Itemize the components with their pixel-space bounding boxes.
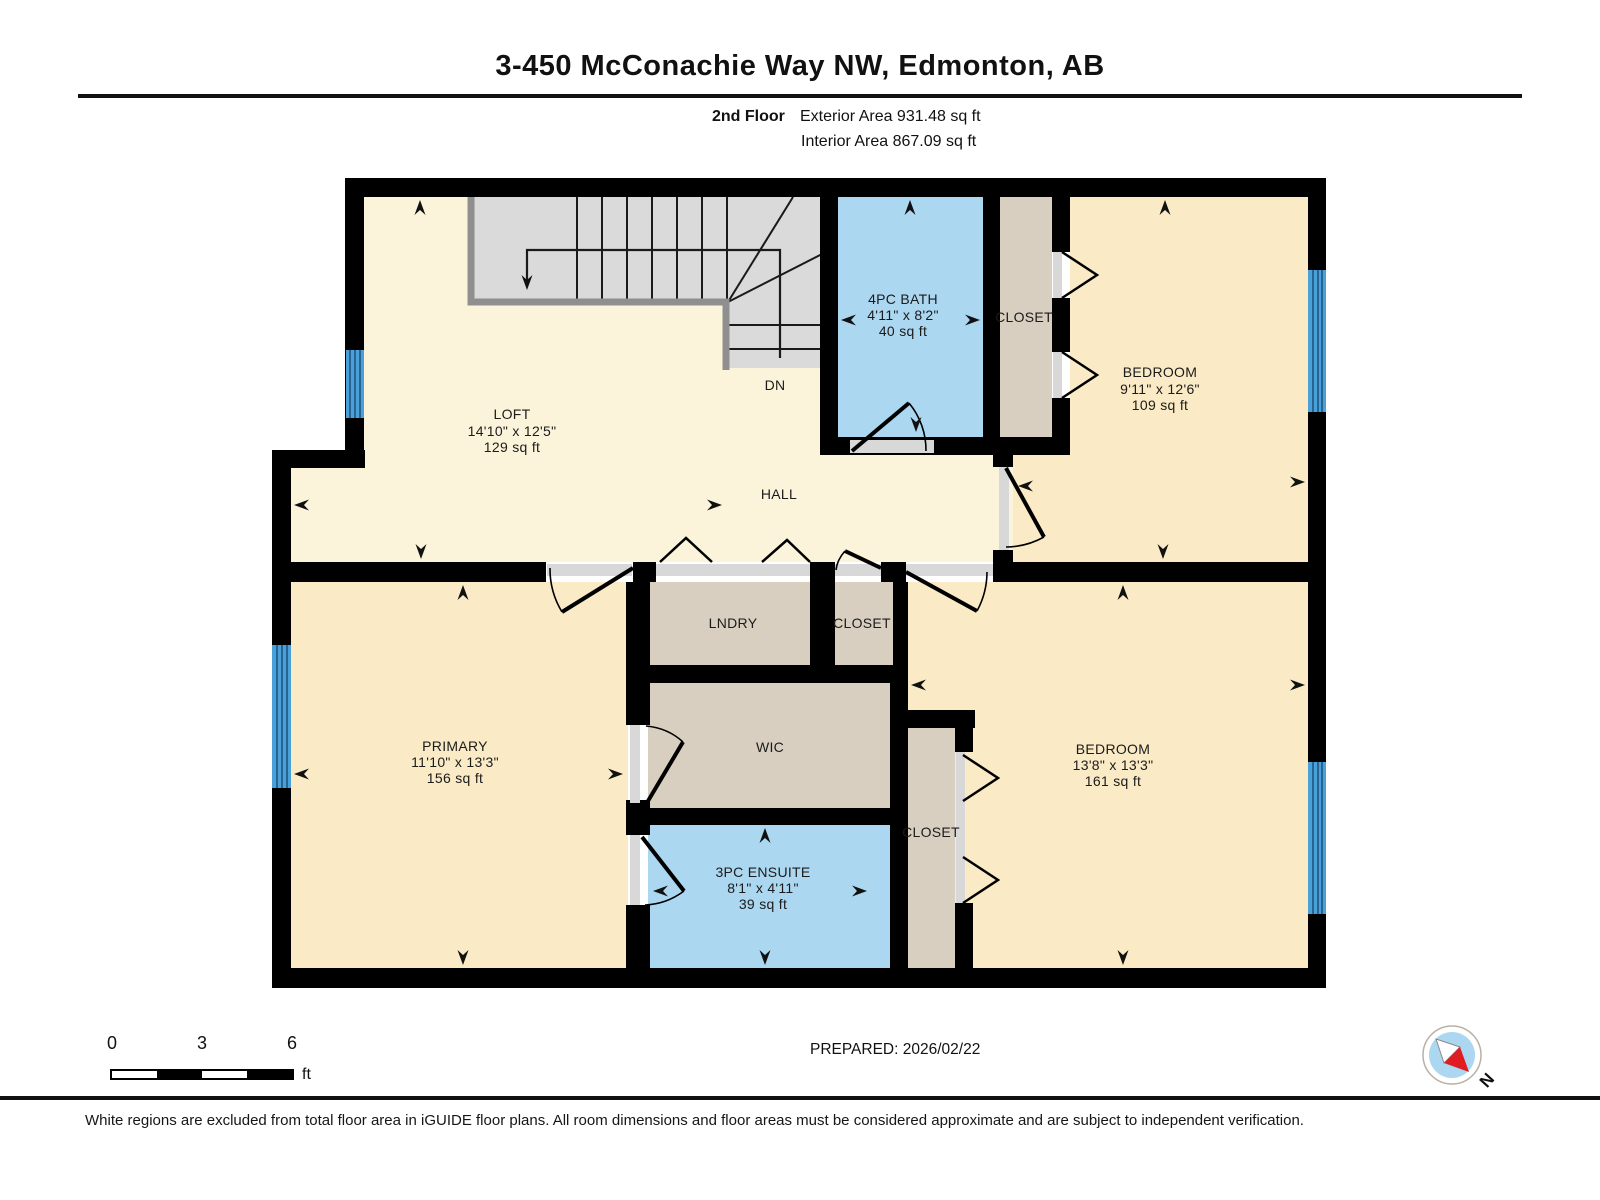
scale-bar-segment — [157, 1071, 202, 1078]
loft-label: LOFT — [494, 406, 531, 422]
closet-bedroom2-label: CLOSET — [902, 824, 960, 840]
compass-icon: N — [1398, 1012, 1510, 1104]
primary-window — [272, 645, 291, 788]
bedroom1-label: BEDROOM — [1123, 364, 1197, 380]
bath-label: 4PC BATH — [868, 291, 938, 307]
primary-area: 156 sq ft — [427, 770, 483, 786]
bath-dims: 4'11" x 8'2" — [867, 307, 939, 323]
bedroom1-window — [1308, 270, 1326, 412]
laundry-label: LNDRY — [709, 615, 758, 631]
scale-bar — [110, 1069, 294, 1080]
loft-window — [346, 350, 364, 418]
bedroom1-area: 109 sq ft — [1132, 397, 1188, 413]
room-closet-bedroom2 — [908, 728, 955, 968]
wic-label: WIC — [756, 739, 784, 755]
ensuite-dims: 8'1" x 4'11" — [727, 880, 799, 896]
prepared-date: PREPARED: 2026/02/22 — [810, 1041, 980, 1059]
floor-plan: LOFT 14'10" x 12'5" 129 sq ft 4PC BATH 4… — [0, 0, 1600, 1200]
bedroom1-dims: 9'11" x 12'6" — [1120, 381, 1200, 397]
footer-disclaimer: White regions are excluded from total fl… — [85, 1112, 1304, 1129]
bath-area: 40 sq ft — [879, 323, 927, 339]
compass-north-label: N — [1476, 1070, 1498, 1092]
primary-dims: 11'10" x 13'3" — [411, 754, 499, 770]
loft-dims: 14'10" x 12'5" — [468, 423, 557, 439]
scale-tick-3: 3 — [187, 1033, 217, 1054]
floorplan-page: { "header": { "title": "3-450 McConachie… — [0, 0, 1600, 1200]
scale-tick-0: 0 — [97, 1033, 127, 1054]
ensuite-area: 39 sq ft — [739, 896, 787, 912]
ensuite-label: 3PC ENSUITE — [715, 864, 810, 880]
footer-rule — [0, 1096, 1600, 1100]
bedroom2-area: 161 sq ft — [1085, 773, 1141, 789]
hall-label: HALL — [761, 486, 797, 502]
bedroom2-window — [1308, 762, 1326, 914]
scale-tick-6: 6 — [277, 1033, 307, 1054]
stairs-dn-label: DN — [765, 377, 786, 393]
scale-bar-segment — [247, 1071, 292, 1078]
primary-label: PRIMARY — [422, 738, 488, 754]
closet-hall-label: CLOSET — [833, 615, 891, 631]
closet-top-label: CLOSET — [995, 309, 1053, 325]
bedroom2-dims: 13'8" x 13'3" — [1073, 757, 1154, 773]
loft-area: 129 sq ft — [484, 439, 540, 455]
bedroom2-label: BEDROOM — [1076, 741, 1150, 757]
scale-unit-label: ft — [302, 1066, 311, 1084]
